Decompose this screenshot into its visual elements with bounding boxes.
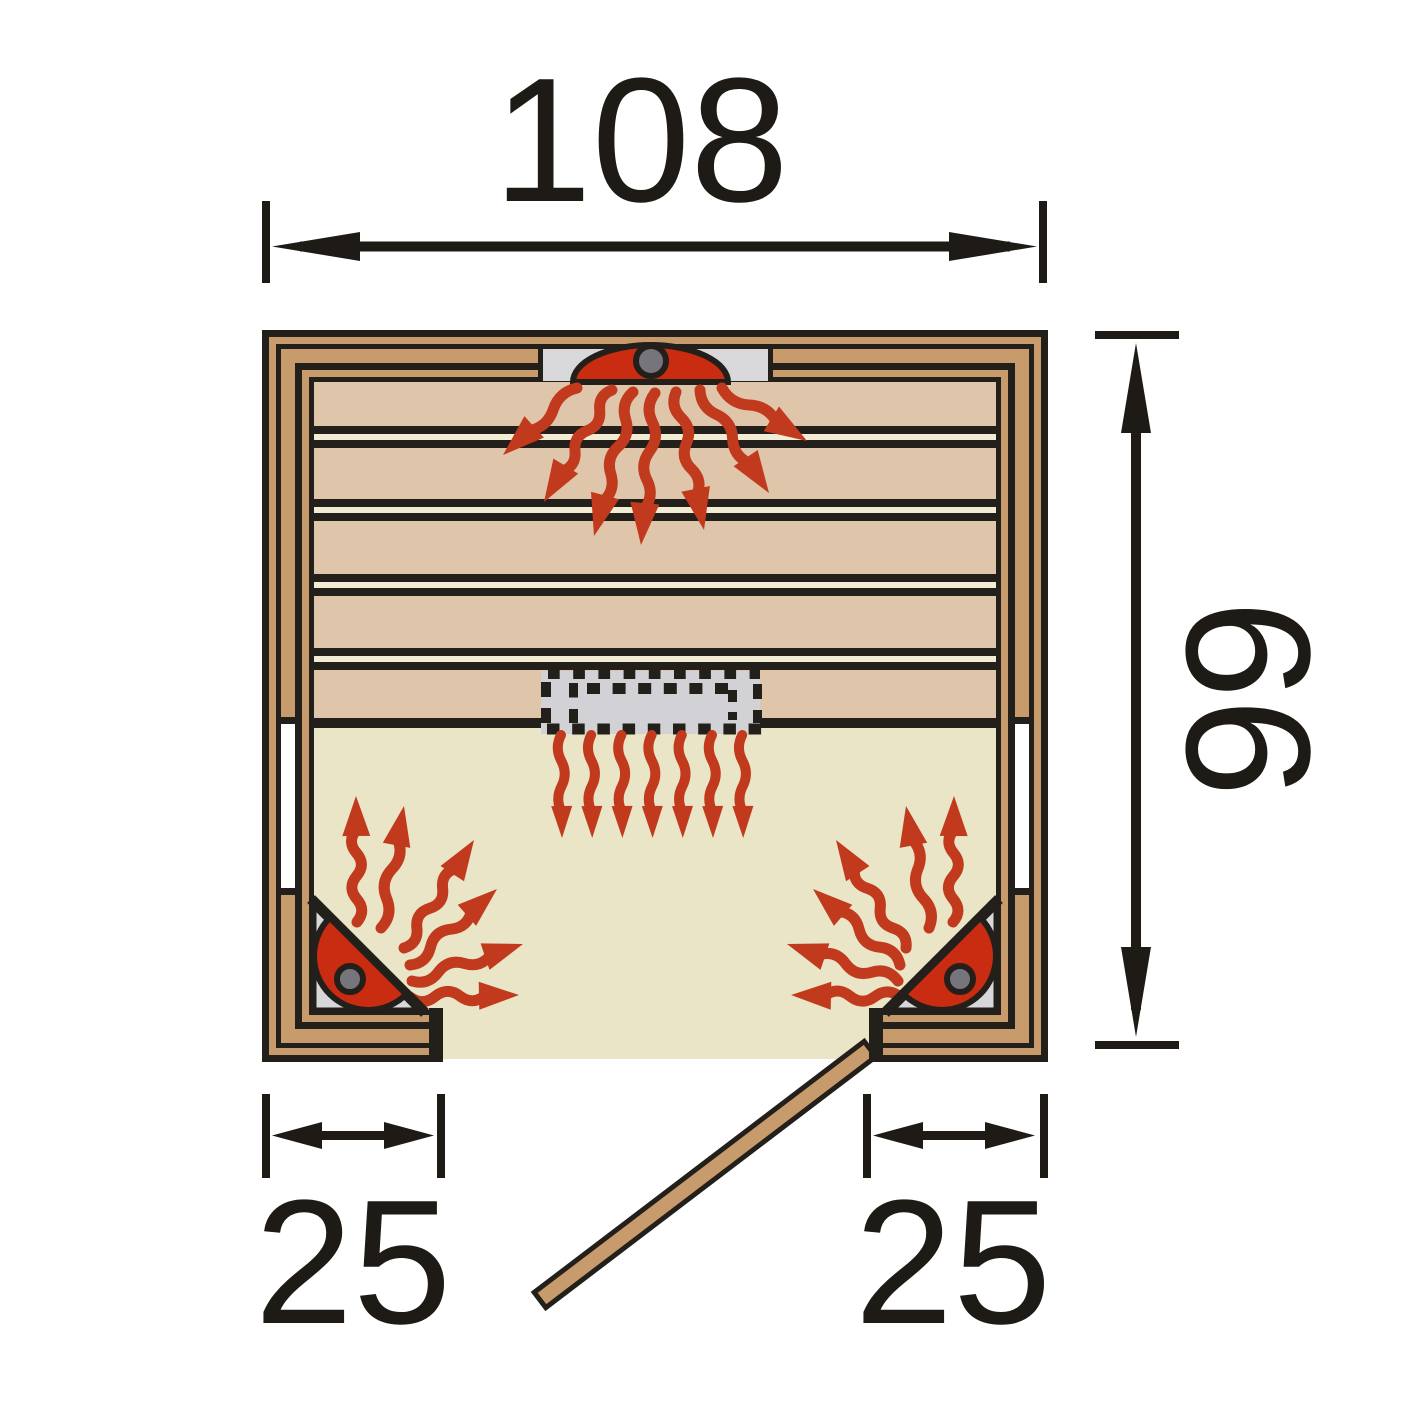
svg-text:108: 108 xyxy=(493,41,788,239)
svg-text:25: 25 xyxy=(255,1163,452,1361)
svg-text:25: 25 xyxy=(855,1163,1052,1361)
svg-text:99: 99 xyxy=(1149,601,1347,798)
